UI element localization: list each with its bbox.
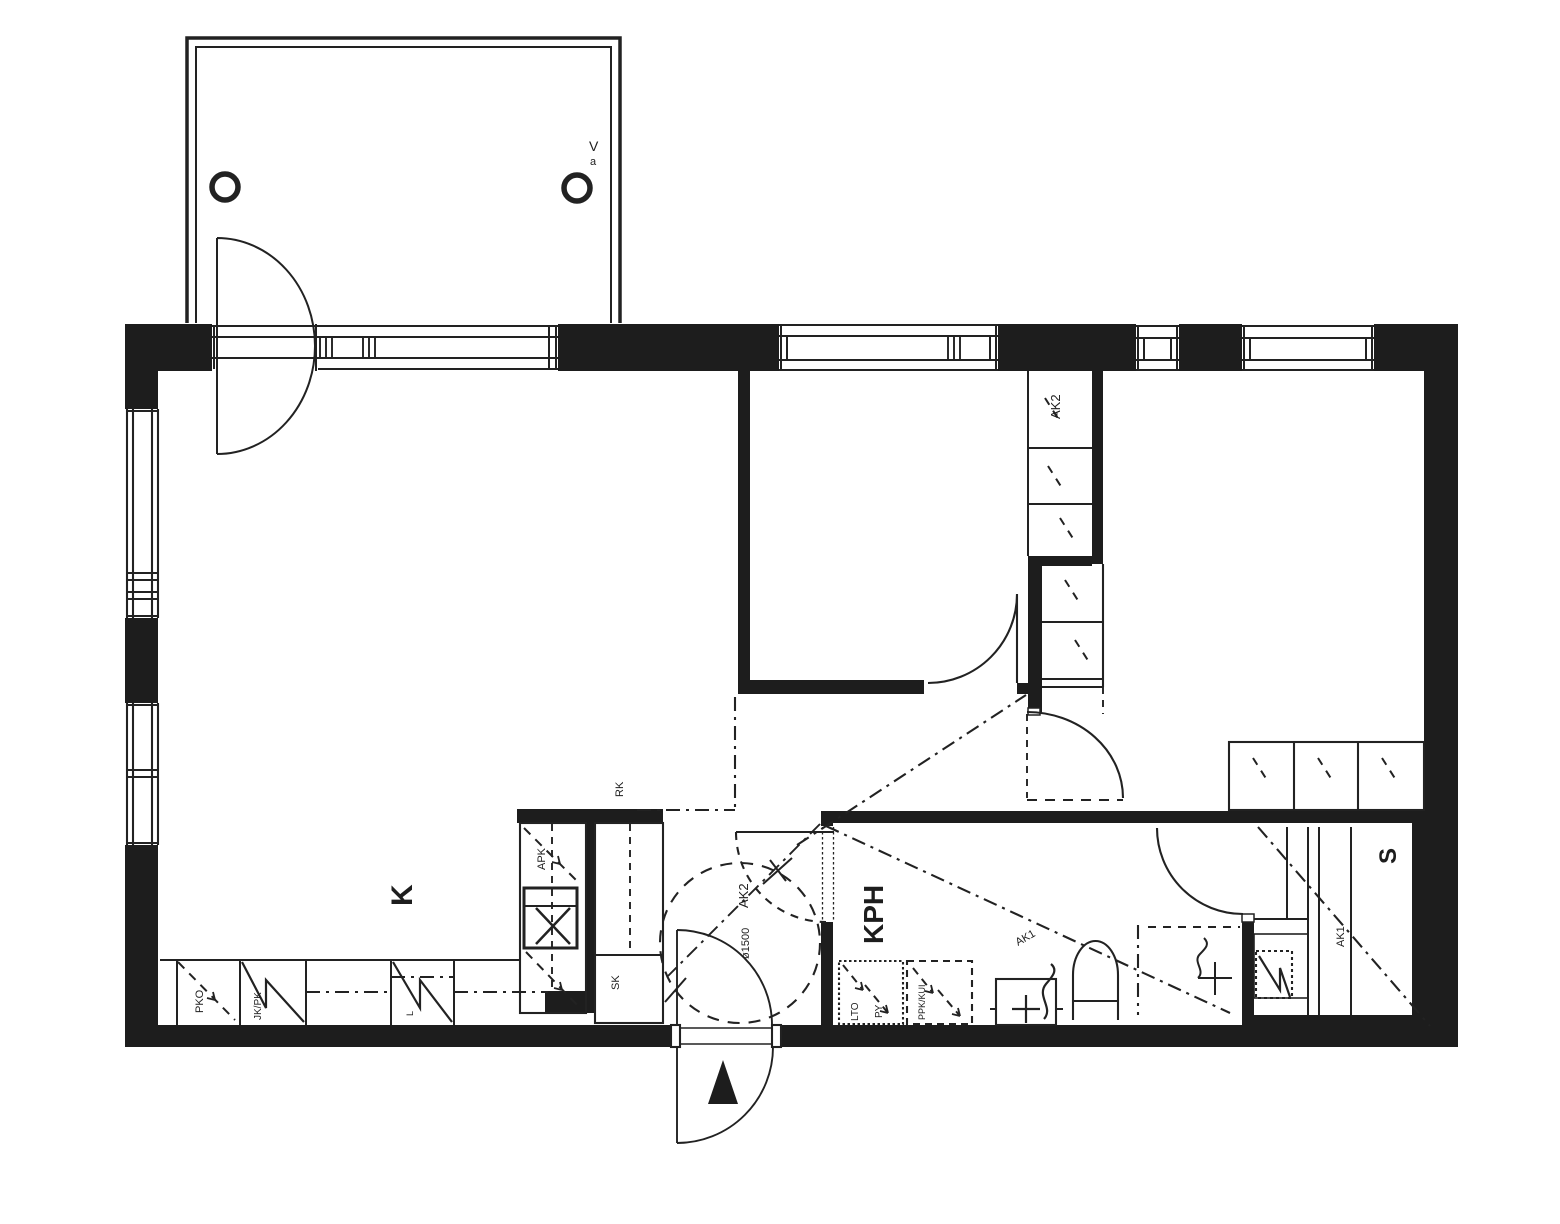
svg-text:LTO: LTO xyxy=(850,1002,861,1021)
svg-text:a: a xyxy=(590,156,597,168)
svg-text:L: L xyxy=(405,1011,415,1016)
svg-text:KPH: KPH xyxy=(858,885,889,944)
svg-text:APK: APK xyxy=(536,847,548,870)
svg-text:SK: SK xyxy=(610,975,622,990)
svg-text:JK/PK: JK/PK xyxy=(253,992,264,1020)
svg-text:PKO: PKO xyxy=(194,989,206,1013)
svg-text:AK2: AK2 xyxy=(736,883,751,908)
svg-text:V: V xyxy=(589,138,599,154)
svg-text:RK: RK xyxy=(614,781,626,797)
svg-text:S: S xyxy=(1375,848,1402,864)
svg-text:AK2: AK2 xyxy=(1048,394,1063,419)
svg-text:K: K xyxy=(386,884,419,906)
svg-text:PPK/KUI: PPK/KUI xyxy=(917,984,927,1020)
svg-text:AK1: AK1 xyxy=(1335,926,1347,947)
svg-text:PY: PY xyxy=(874,1004,885,1018)
